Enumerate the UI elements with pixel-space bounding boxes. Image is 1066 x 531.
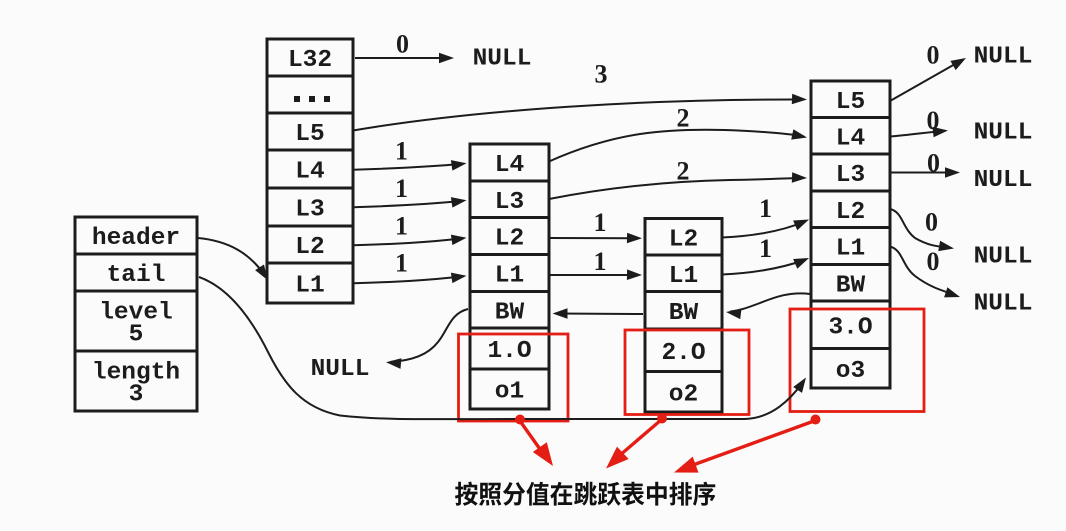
svg-text:header: header [92, 225, 180, 252]
svg-text:L2: L2 [836, 199, 865, 226]
svg-text:L5: L5 [836, 89, 865, 116]
svg-text:3: 3 [129, 382, 144, 409]
svg-text:NULL: NULL [473, 46, 532, 73]
svg-text:NULL: NULL [974, 44, 1033, 71]
svg-text:2: 2 [677, 104, 690, 133]
svg-text:L4: L4 [495, 152, 524, 179]
svg-text:BW: BW [669, 300, 699, 327]
svg-text:NULL: NULL [974, 120, 1033, 147]
svg-text:tail: tail [107, 262, 166, 289]
svg-text:L2: L2 [495, 226, 524, 253]
svg-text:0: 0 [927, 149, 940, 178]
svg-text:L2: L2 [295, 234, 324, 261]
svg-text:BW: BW [836, 272, 866, 299]
svg-text:1: 1 [395, 174, 408, 203]
svg-text:2.O: 2.O [661, 340, 705, 367]
svg-text:L1: L1 [295, 273, 324, 300]
svg-text:L4: L4 [295, 159, 324, 186]
svg-text:0: 0 [925, 208, 938, 237]
svg-text:1: 1 [395, 137, 408, 166]
svg-text:L4: L4 [836, 125, 865, 152]
svg-text:NULL: NULL [311, 356, 370, 383]
svg-text:5: 5 [129, 322, 144, 349]
svg-text:L3: L3 [295, 197, 324, 224]
svg-text:L1: L1 [669, 263, 698, 290]
svg-text:1.O: 1.O [487, 338, 531, 365]
svg-text:L3: L3 [495, 189, 524, 216]
svg-text:L5: L5 [295, 121, 324, 148]
svg-text:1: 1 [759, 194, 772, 223]
svg-text:L1: L1 [836, 236, 865, 263]
svg-text:0: 0 [927, 41, 940, 70]
svg-text:L3: L3 [836, 162, 865, 189]
svg-text:L1: L1 [495, 263, 524, 290]
svg-text:0: 0 [927, 106, 940, 135]
svg-text:L32: L32 [288, 47, 332, 74]
svg-text:1: 1 [759, 234, 772, 263]
svg-text:L2: L2 [669, 226, 698, 253]
svg-text:2: 2 [677, 157, 690, 186]
svg-text:0: 0 [396, 30, 409, 59]
svg-text:1: 1 [395, 249, 408, 278]
svg-text:o1: o1 [495, 379, 524, 406]
svg-text:BW: BW [495, 299, 525, 326]
svg-text:1: 1 [594, 247, 607, 276]
svg-text:NULL: NULL [974, 167, 1033, 194]
svg-text:o3: o3 [836, 358, 865, 385]
svg-text:NULL: NULL [974, 291, 1033, 318]
svg-text:3: 3 [595, 60, 608, 89]
svg-text:1: 1 [395, 212, 408, 241]
svg-text:o2: o2 [669, 381, 698, 408]
svg-text:3.O: 3.O [828, 314, 872, 341]
svg-text:NULL: NULL [974, 243, 1033, 270]
svg-text:1: 1 [594, 208, 607, 237]
svg-text:0: 0 [927, 247, 940, 276]
